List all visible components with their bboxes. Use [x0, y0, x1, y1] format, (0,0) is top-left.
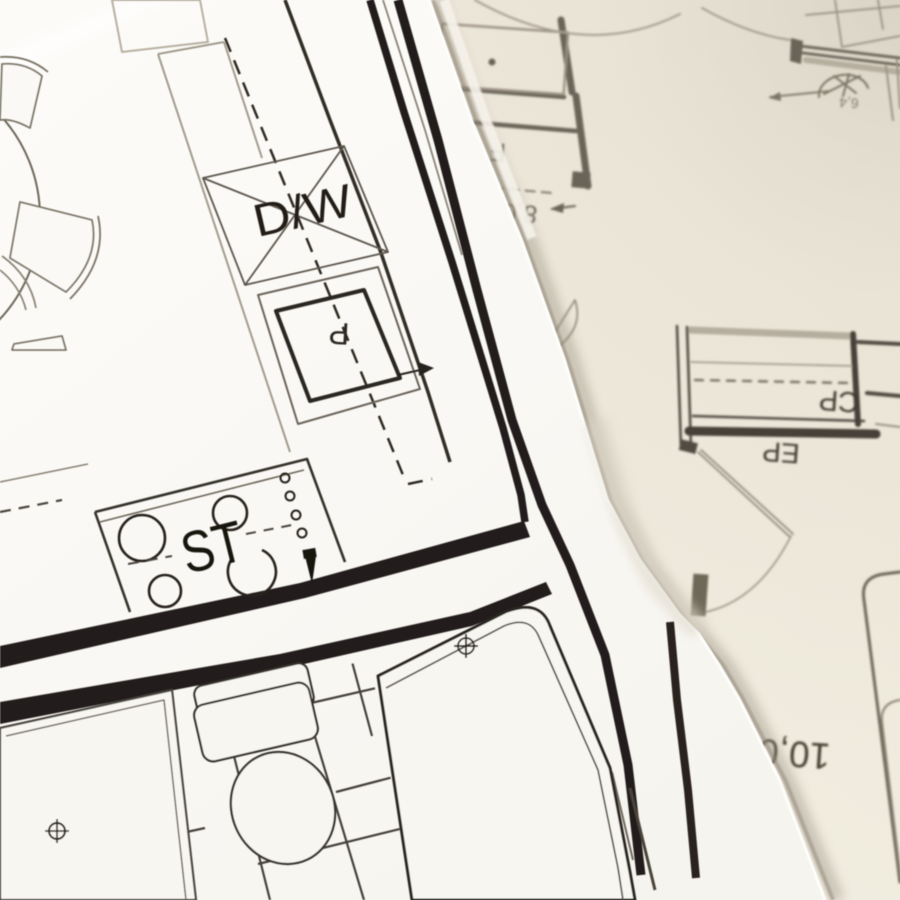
svg-text:P: P [328, 315, 350, 351]
svg-text:EP: EP [761, 436, 800, 470]
svg-text:CP: CP [818, 383, 860, 418]
svg-text:6,4: 6,4 [839, 94, 860, 111]
